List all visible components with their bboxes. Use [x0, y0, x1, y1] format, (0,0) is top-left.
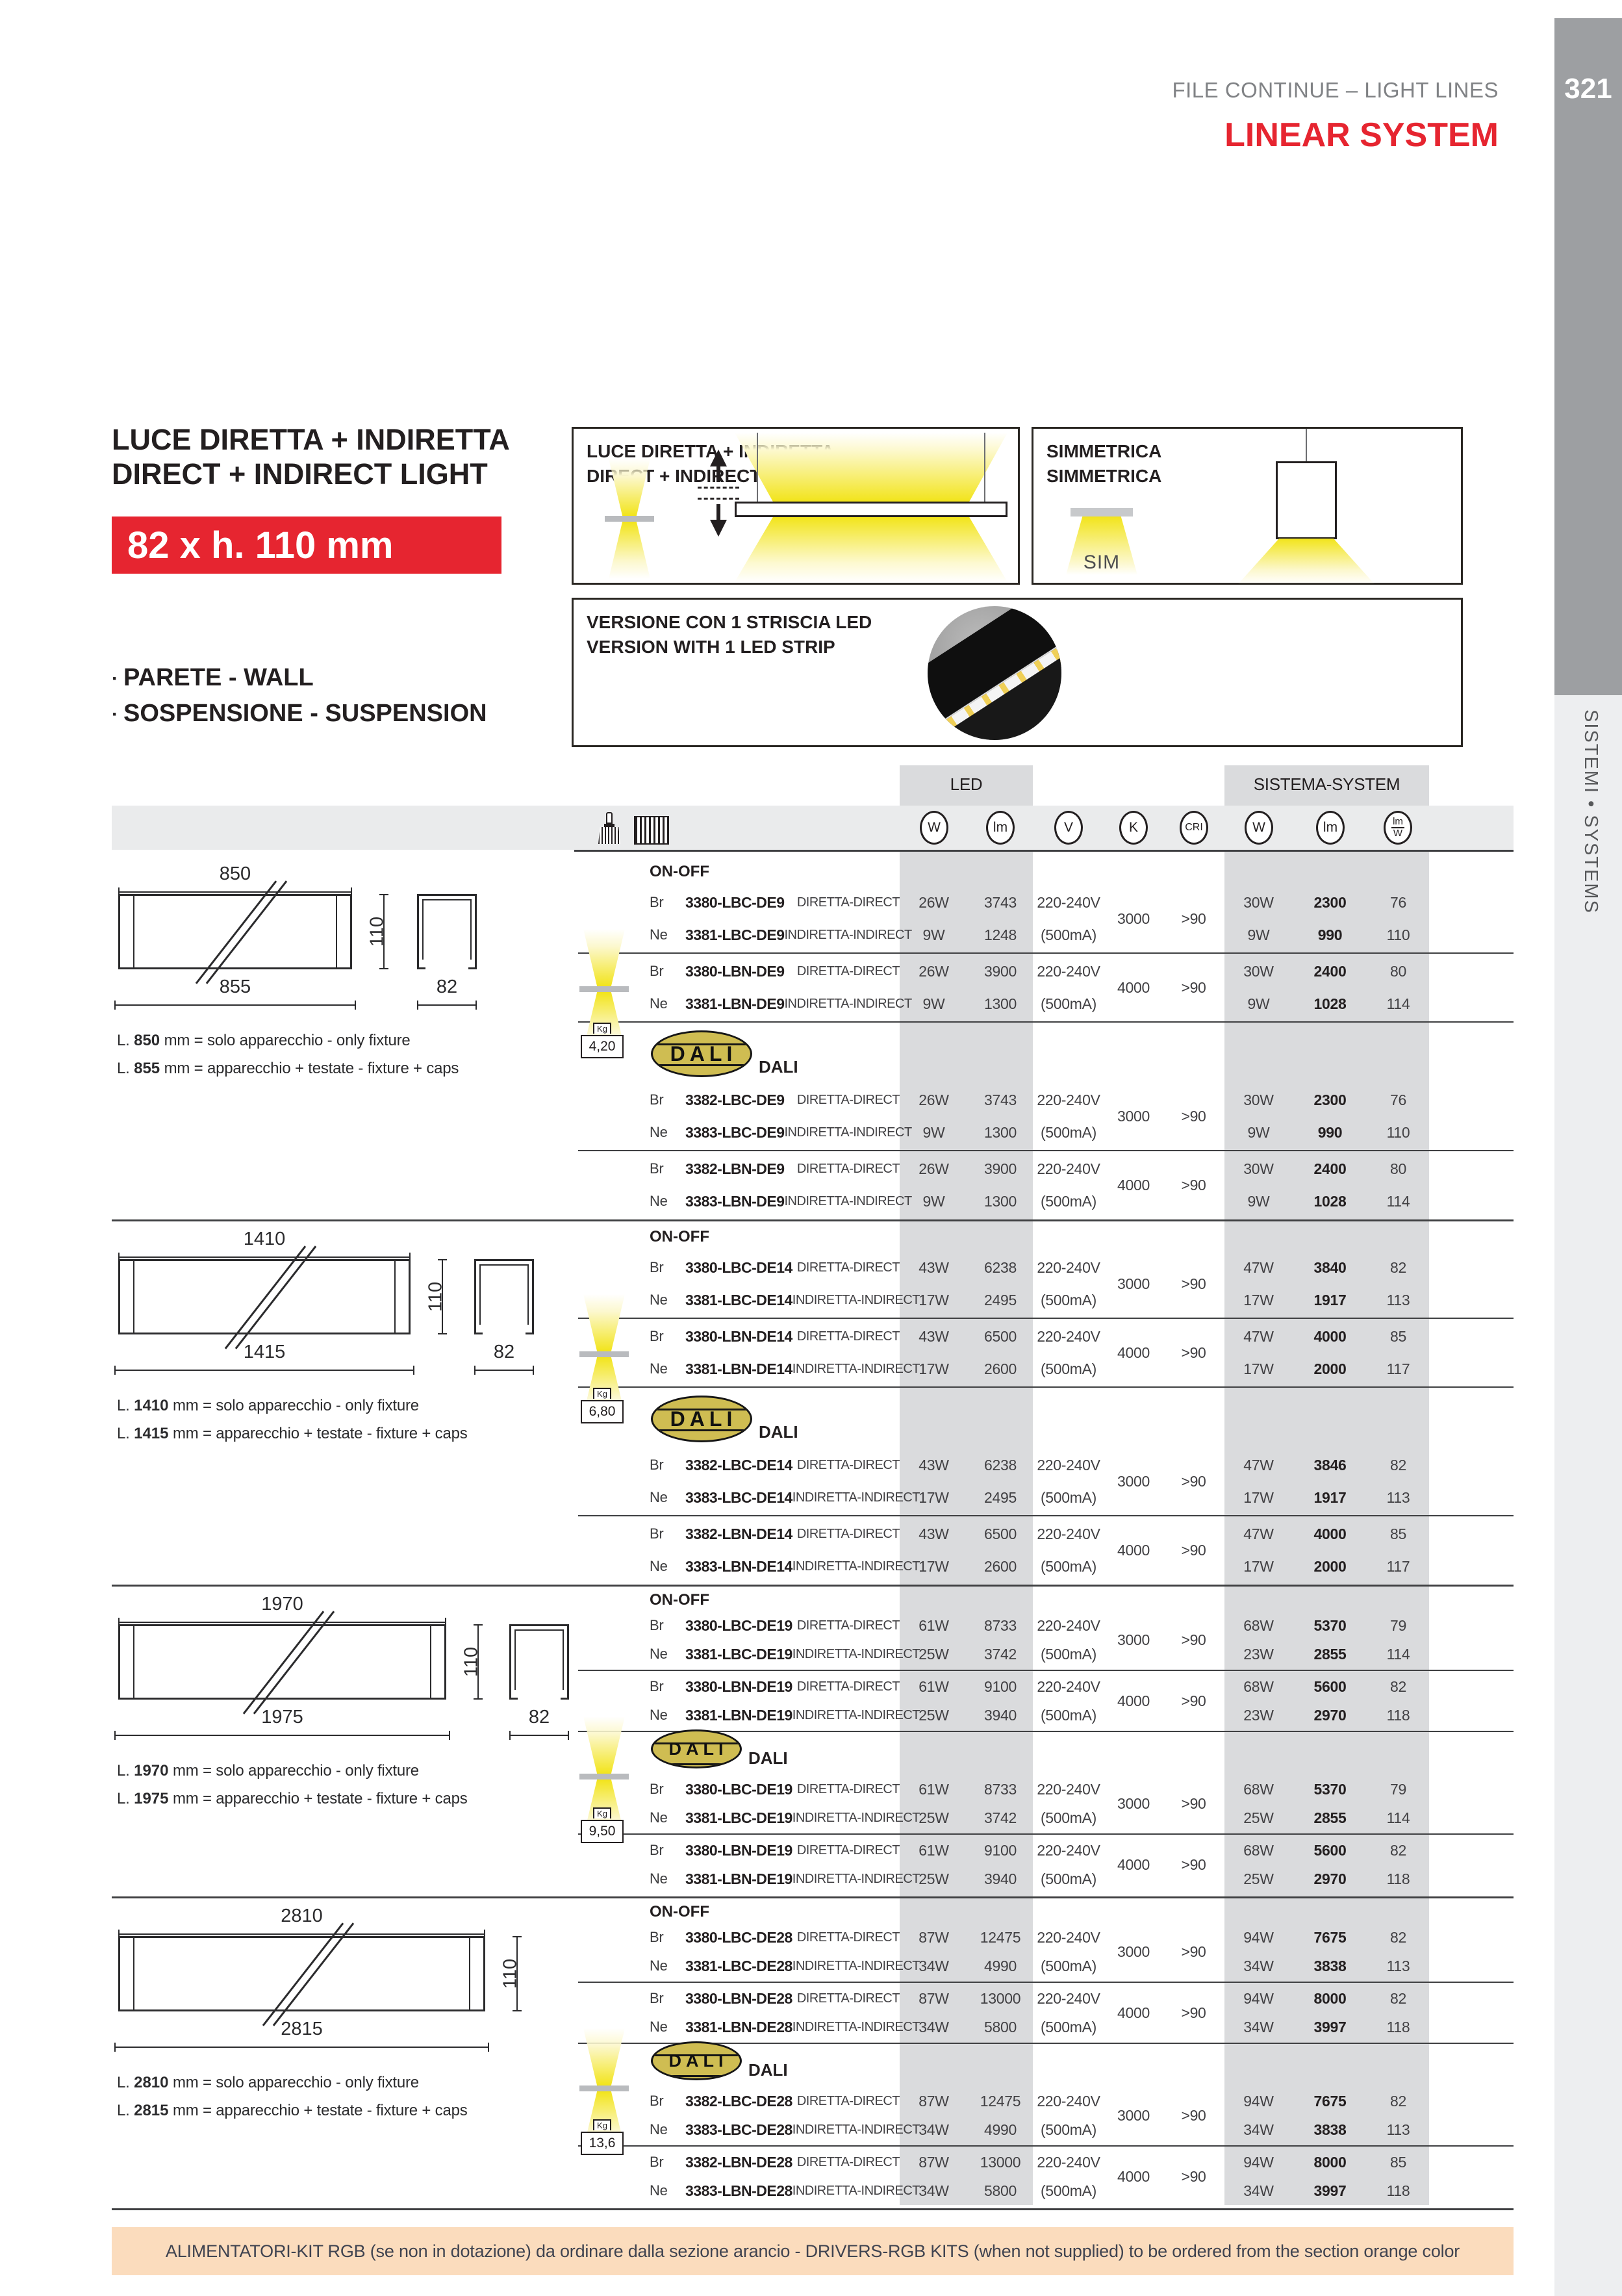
emission-label: DIRETTA-DIRECT — [797, 1775, 900, 1804]
current: (500mA) — [1033, 2013, 1104, 2041]
product-code: 3382-LBN-DE9 — [685, 1153, 785, 1185]
finish-code: Ne — [650, 2115, 685, 2144]
cri-value: >90 — [1181, 1692, 1206, 1710]
weight-value: 6,80 — [581, 1400, 624, 1423]
system-lmw: 85 — [1367, 1320, 1429, 1353]
system-lmw: 118 — [1367, 1701, 1429, 1729]
finish-code: Ne — [650, 1353, 685, 1385]
bullet-icon: · — [112, 704, 123, 725]
system-watt: 30W — [1224, 1084, 1293, 1116]
led-watt: 17W — [900, 1481, 968, 1514]
weight-unit: Kg — [593, 1023, 611, 1034]
product-code: 3382-LBC-DE14 — [685, 1449, 792, 1481]
dim-height: 110 — [461, 1647, 483, 1677]
emission-label: DIRETTA-DIRECT — [797, 1923, 900, 1952]
system-lumen: 2300 — [1293, 886, 1367, 919]
product-code: 3381-LBN-DE9 — [685, 988, 785, 1020]
header-kicker: FILE CONTINUE – LIGHT LINES — [1172, 78, 1499, 103]
led-watt: 61W — [900, 1775, 968, 1804]
system-lumen: 3997 — [1293, 2176, 1367, 2205]
led-lumen: 6500 — [968, 1320, 1033, 1353]
product-code: 3380-LBC-DE9 — [685, 886, 785, 919]
icon-spacer — [578, 2148, 650, 2205]
product-code: 3382-LBC-DE28 — [685, 2087, 792, 2115]
voltage: 220-240V — [1033, 1836, 1104, 1865]
current: (500mA) — [1033, 1640, 1104, 1668]
product-group: 850 110 855 82 L. 850 mm = solo apparecc… — [112, 856, 1514, 1221]
led-watt: 9W — [900, 1185, 968, 1218]
info-box-title-line2: VERSION WITH 1 LED STRIP — [587, 635, 872, 659]
system-lumen: 8000 — [1293, 1984, 1367, 2013]
sim-icon-label: SIM — [1083, 552, 1120, 575]
emission-label: DIRETTA-DIRECT — [797, 1984, 900, 2013]
system-watt-unit-icon: W — [1245, 811, 1273, 845]
product-code: 3381-LBN-DE28 — [685, 2013, 792, 2041]
dim-width: 82 — [474, 1342, 534, 1363]
product-code-icon — [635, 817, 668, 843]
cri-value: >90 — [1181, 2168, 1206, 2186]
system-watt: 17W — [1224, 1550, 1293, 1583]
voltage: 220-240V — [1033, 886, 1104, 919]
product-code: 3381-LBC-DE19 — [685, 1640, 792, 1668]
system-lumen: 4000 — [1293, 1320, 1367, 1353]
finish-code: Ne — [650, 1701, 685, 1729]
voltage: 220-240V — [1033, 1449, 1104, 1481]
color-temperature: 3000 — [1117, 1795, 1150, 1813]
finish-code: Ne — [650, 1185, 685, 1218]
voltage: 220-240V — [1033, 955, 1104, 988]
dali-label: DALI — [759, 1422, 798, 1442]
system-lmw: 114 — [1367, 1185, 1429, 1218]
width-dimension: 82 — [509, 1707, 569, 1736]
system-lumen: 3997 — [1293, 2013, 1367, 2041]
emission-label: DIRETTA-DIRECT — [797, 1836, 900, 1865]
dimension-drawing: 850 110 855 82 L. 850 mm = solo apparecc… — [112, 864, 578, 1163]
voltage: 220-240V — [1033, 1775, 1104, 1804]
current: (500mA) — [1033, 1804, 1104, 1832]
product-code: 3380-LBN-DE28 — [685, 1984, 792, 2013]
product-code: 3382-LBC-DE9 — [685, 1084, 785, 1116]
voltage: 220-240V — [1033, 1153, 1104, 1185]
finish-brush-icon — [596, 812, 622, 846]
led-lumen: 3900 — [968, 1153, 1033, 1185]
page-title: LINEAR SYSTEM — [1224, 116, 1499, 155]
finish-code: Br — [650, 1672, 685, 1701]
system-lmw: 79 — [1367, 1775, 1429, 1804]
led-watt: 87W — [900, 1923, 968, 1952]
dali-section-header: DALI DALI — [651, 2044, 1514, 2086]
system-lmw: 114 — [1367, 1640, 1429, 1668]
cri-value: >90 — [1181, 1631, 1206, 1649]
direct-indirect-light-icon — [609, 459, 650, 579]
system-watt: 94W — [1224, 1923, 1293, 1952]
led-lumen: 6238 — [968, 1251, 1033, 1284]
weight-value: 9,50 — [581, 1820, 624, 1843]
led-watt: 25W — [900, 1865, 968, 1893]
dali-label: DALI — [748, 2060, 788, 2080]
product-row-pair: Br Ne 3380-LBC-DE9DIRETTA-DIRECT 3381-LB… — [578, 885, 1514, 952]
system-watt: 94W — [1224, 2148, 1293, 2176]
product-code: 3381-LBC-DE9 — [685, 919, 785, 951]
finish-code: Ne — [650, 919, 685, 951]
length-dimension-bottom: 1975 — [114, 1707, 450, 1736]
current: (500mA) — [1033, 1550, 1104, 1583]
system-lumen: 5600 — [1293, 1836, 1367, 1865]
section-label: ON-OFF — [650, 1224, 1514, 1250]
system-watt: 94W — [1224, 1984, 1293, 2013]
height-dimension: 110 — [505, 1936, 528, 2011]
color-temperature: 3000 — [1117, 1275, 1150, 1293]
product-row-pair: Br Ne 3380-LBN-DE28DIRETTA-DIRECT 3381-L… — [578, 1983, 1514, 2043]
led-watt: 43W — [900, 1320, 968, 1353]
length-dimension-top: 850 — [118, 864, 352, 893]
color-temperature: 4000 — [1117, 2004, 1150, 2022]
product-row-pair: Br Ne 3382-LBC-DE9DIRETTA-DIRECT 3383-LB… — [578, 1082, 1514, 1150]
system-lumen: 2300 — [1293, 1084, 1367, 1116]
product-photo — [928, 606, 1061, 740]
group-sections: ON-OFF Br Ne 3380-LBC-DE19DIRETTA-DIRECT… — [578, 1587, 1514, 1894]
system-watt: 34W — [1224, 1952, 1293, 1980]
finish-code: Br — [650, 886, 685, 919]
current: (500mA) — [1033, 1353, 1104, 1385]
led-lumen: 1248 — [968, 919, 1033, 951]
color-temperature: 3000 — [1117, 1943, 1150, 1961]
system-watt: 94W — [1224, 2087, 1293, 2115]
product-code: 3383-LBC-DE28 — [685, 2115, 792, 2144]
led-watt: 61W — [900, 1672, 968, 1701]
voltage-unit-icon: V — [1054, 811, 1083, 845]
led-watt: 34W — [900, 1952, 968, 1980]
system-lmw: 82 — [1367, 1923, 1429, 1952]
cri-value: >90 — [1181, 1275, 1206, 1293]
led-watt: 9W — [900, 988, 968, 1020]
table-header-rule — [574, 850, 1514, 852]
system-watt: 68W — [1224, 1775, 1293, 1804]
led-lumen: 3940 — [968, 1865, 1033, 1893]
length-caption: L. 1410 mm = solo apparecchio - only fix… — [117, 1392, 468, 1420]
fixture-top-view — [118, 894, 352, 969]
voltage: 220-240V — [1033, 1518, 1104, 1550]
color-temperature: 4000 — [1117, 1692, 1150, 1710]
length-dimension-top: 1410 — [118, 1229, 411, 1258]
section-label: ON-OFF — [650, 1589, 1514, 1610]
finish-code: Ne — [650, 1550, 685, 1583]
system-watt: 47W — [1224, 1449, 1293, 1481]
length-dimension-top: 1970 — [118, 1594, 446, 1623]
product-code: 3380-LBN-DE14 — [685, 1320, 792, 1353]
cri-value: >90 — [1181, 2004, 1206, 2022]
led-lumen: 3742 — [968, 1640, 1033, 1668]
finish-code: Br — [650, 1611, 685, 1640]
system-watt: 47W — [1224, 1251, 1293, 1284]
emission-label: DIRETTA-DIRECT — [797, 886, 900, 919]
finish-code: Ne — [650, 1804, 685, 1832]
led-lumen: 1300 — [968, 1116, 1033, 1149]
bullet-icon: · — [112, 668, 123, 689]
rgb-drivers-note: ALIMENTATORI-KIT RGB (se non in dotazion… — [112, 2227, 1514, 2275]
system-watt: 17W — [1224, 1353, 1293, 1385]
product-code: 3380-LBC-DE19 — [685, 1611, 792, 1640]
dali-section-header: DALI DALI — [651, 1732, 1514, 1774]
color-temperature: 3000 — [1117, 1631, 1150, 1649]
product-row-pair: Br Ne 3380-LBC-DE19DIRETTA-DIRECT 3381-L… — [578, 1610, 1514, 1670]
led-watt: 87W — [900, 2148, 968, 2176]
system-lumen: 5370 — [1293, 1775, 1367, 1804]
size-badge: 82 x h. 110 mm — [112, 517, 501, 574]
current: (500mA) — [1033, 1284, 1104, 1316]
led-lumen: 4990 — [968, 2115, 1033, 2144]
emission-label: DIRETTA-DIRECT — [797, 1449, 900, 1481]
emission-label: DIRETTA-DIRECT — [797, 1084, 900, 1116]
led-lumen: 3743 — [968, 1084, 1033, 1116]
dim-length-bottom: 855 — [114, 976, 356, 998]
led-lumen: 2495 — [968, 1284, 1033, 1316]
dim-length-top: 2810 — [118, 1906, 485, 1927]
led-watt: 17W — [900, 1353, 968, 1385]
system-lumen: 1028 — [1293, 1185, 1367, 1218]
product-group: 1970 110 1975 82 L. 1970 mm = solo appar… — [112, 1587, 1514, 1898]
finish-code: Br — [650, 1518, 685, 1550]
current: (500mA) — [1033, 2115, 1104, 2144]
led-lumen: 13000 — [968, 1984, 1033, 2013]
system-lumen: 7675 — [1293, 2087, 1367, 2115]
group-sections: ON-OFF Br Ne 3380-LBC-DE28DIRETTA-DIRECT… — [578, 1898, 1514, 2206]
mounting-item-label: PARETE - WALL — [123, 664, 314, 691]
led-lumen: 13000 — [968, 2148, 1033, 2176]
fixture-top-view — [118, 1624, 446, 1700]
dim-height: 110 — [425, 1282, 447, 1312]
system-lmw: 110 — [1367, 919, 1429, 951]
led-lumen: 9100 — [968, 1836, 1033, 1865]
color-temperature: 3000 — [1117, 2107, 1150, 2124]
fixture-profile-view — [509, 1624, 569, 1700]
section-label: ON-OFF — [650, 1901, 1514, 1922]
system-watt: 17W — [1224, 1284, 1293, 1316]
cri-value: >90 — [1181, 2107, 1206, 2124]
pendant-diagram — [696, 433, 1007, 583]
icon-spacer — [578, 1923, 650, 1980]
kelvin-unit-icon: K — [1119, 811, 1148, 845]
emission-label: DIRETTA-DIRECT — [797, 1251, 900, 1284]
finish-code: Br — [650, 955, 685, 988]
system-watt: 68W — [1224, 1611, 1293, 1640]
current: (500mA) — [1033, 1116, 1104, 1149]
dimension-drawing: 1410 110 1415 82 L. 1410 mm = solo appar… — [112, 1229, 578, 1528]
color-temperature: 4000 — [1117, 1856, 1150, 1874]
product-code: 3383-LBN-DE28 — [685, 2176, 792, 2205]
current: (500mA) — [1033, 1185, 1104, 1218]
led-watt: 34W — [900, 2013, 968, 2041]
voltage: 220-240V — [1033, 1672, 1104, 1701]
weight-icon: Kg 6,80 — [581, 1388, 624, 1423]
color-temperature: 4000 — [1117, 1177, 1150, 1194]
voltage: 220-240V — [1033, 1084, 1104, 1116]
mounting-item: ·SOSPENSIONE - SUSPENSION — [112, 696, 487, 732]
led-watt: 61W — [900, 1611, 968, 1640]
product-row-pair: Br Ne 3380-LBC-DE14DIRETTA-DIRECT 3381-L… — [578, 1250, 1514, 1318]
system-watt: 47W — [1224, 1320, 1293, 1353]
led-lumen: 5800 — [968, 2013, 1033, 2041]
voltage: 220-240V — [1033, 2087, 1104, 2115]
system-lmw: 80 — [1367, 1153, 1429, 1185]
led-watt: 43W — [900, 1251, 968, 1284]
length-dimension-bottom: 855 — [114, 977, 356, 1006]
led-lumen: 6238 — [968, 1449, 1033, 1481]
system-lumen: 990 — [1293, 919, 1367, 951]
product-code: 3380-LBN-DE19 — [685, 1672, 792, 1701]
dimension-drawing: 1970 110 1975 82 L. 1970 mm = solo appar… — [112, 1594, 578, 1893]
voltage: 220-240V — [1033, 2148, 1104, 2176]
dim-length-bottom: 2815 — [114, 2019, 489, 2040]
system-lmw: 113 — [1367, 1481, 1429, 1514]
led-lumen: 3940 — [968, 1701, 1033, 1729]
product-title-line2: DIRECT + INDIRECT LIGHT — [112, 457, 510, 491]
finish-code: Ne — [650, 1952, 685, 1980]
voltage: 220-240V — [1033, 1984, 1104, 2013]
product-code: 3380-LBC-DE28 — [685, 1923, 792, 1952]
led-watt: 34W — [900, 2115, 968, 2144]
led-watt: 26W — [900, 955, 968, 988]
led-watt: 43W — [900, 1449, 968, 1481]
finish-code: Br — [650, 1084, 685, 1116]
dali-logo: DALI — [651, 2041, 742, 2080]
led-lumen: 1300 — [968, 988, 1033, 1020]
system-lumen: 2970 — [1293, 1865, 1367, 1893]
system-lmw: 82 — [1367, 2087, 1429, 2115]
fixture-profile-view — [417, 894, 477, 969]
product-code: 3381-LBN-DE19 — [685, 1865, 792, 1893]
system-lmw: 76 — [1367, 886, 1429, 919]
dim-length-bottom: 1415 — [114, 1342, 414, 1363]
icon-spacer — [578, 1518, 650, 1583]
mounting-item-label: SOSPENSIONE - SUSPENSION — [123, 700, 487, 727]
emission-label: DIRETTA-DIRECT — [797, 955, 900, 988]
fixture-top-view — [118, 1259, 411, 1334]
system-lmw: 82 — [1367, 1449, 1429, 1481]
color-temperature: 3000 — [1117, 1108, 1150, 1125]
voltage: 220-240V — [1033, 1320, 1104, 1353]
weight-unit: Kg — [593, 1807, 611, 1818]
system-watt: 23W — [1224, 1640, 1293, 1668]
product-row-pair: Br Ne 3380-LBC-DE19DIRETTA-DIRECT 3381-L… — [578, 1774, 1514, 1833]
system-lmw: 113 — [1367, 2115, 1429, 2144]
dali-logo: DALI — [651, 1729, 742, 1768]
system-lumen: 8000 — [1293, 2148, 1367, 2176]
system-lumen: 3838 — [1293, 1952, 1367, 1980]
color-temperature: 4000 — [1117, 1344, 1150, 1362]
length-caption: L. 1415 mm = apparecchio + testate - fix… — [117, 1420, 468, 1448]
emission-label: DIRETTA-DIRECT — [797, 1672, 900, 1701]
dim-height: 110 — [367, 917, 388, 947]
led-lumen: 9100 — [968, 1672, 1033, 1701]
product-row-pair: Br Ne 3382-LBC-DE28DIRETTA-DIRECT 3383-L… — [578, 2086, 1514, 2145]
led-watt: 17W — [900, 1550, 968, 1583]
product-group: 1410 110 1415 82 L. 1410 mm = solo appar… — [112, 1221, 1514, 1587]
color-temperature: 3000 — [1117, 910, 1150, 928]
cri-unit-icon: CRI — [1180, 811, 1208, 845]
led-lumen: 1300 — [968, 1185, 1033, 1218]
system-lumen: 1917 — [1293, 1284, 1367, 1316]
length-captions: L. 1970 mm = solo apparecchio - only fix… — [117, 1757, 468, 1813]
led-lumen: 8733 — [968, 1775, 1033, 1804]
finish-code: Br — [650, 2148, 685, 2176]
system-lumen: 2000 — [1293, 1353, 1367, 1385]
finish-code: Ne — [650, 2013, 685, 2041]
led-lumen: 12475 — [968, 2087, 1033, 2115]
product-code: 3383-LBC-DE14 — [685, 1481, 792, 1514]
weight-value: 4,20 — [581, 1035, 624, 1058]
led-lumen: 2495 — [968, 1481, 1033, 1514]
system-lmw: 82 — [1367, 1984, 1429, 2013]
led-lumen: 4990 — [968, 1952, 1033, 1980]
length-dimension-bottom: 1415 — [114, 1342, 414, 1371]
product-groups: 850 110 855 82 L. 850 mm = solo apparecc… — [112, 856, 1514, 2210]
system-lumen: 2400 — [1293, 955, 1367, 988]
dim-width: 82 — [509, 1707, 569, 1728]
product-code: 3383-LBC-DE9 — [685, 1116, 785, 1149]
length-captions: L. 1410 mm = solo apparecchio - only fix… — [117, 1392, 468, 1448]
color-temperature: 4000 — [1117, 979, 1150, 997]
system-lmw: 82 — [1367, 1251, 1429, 1284]
product-row-pair: Br Ne 3382-LBN-DE9DIRETTA-DIRECT 3383-LB… — [578, 1151, 1514, 1219]
length-caption: L. 2815 mm = apparecchio + testate - fix… — [117, 2097, 468, 2124]
info-box-led-strip: VERSIONE CON 1 STRISCIA LED VERSION WITH… — [572, 598, 1463, 747]
product-row-pair: Br Ne 3380-LBN-DE14DIRETTA-DIRECT 3381-L… — [578, 1319, 1514, 1386]
product-code: 3381-LBN-DE14 — [685, 1353, 792, 1385]
mounting-item: ·PARETE - WALL — [112, 660, 487, 696]
system-lmw: 85 — [1367, 1518, 1429, 1550]
led-lumen: 3743 — [968, 886, 1033, 919]
product-code: 3380-LBC-DE14 — [685, 1251, 792, 1284]
led-watt: 25W — [900, 1804, 968, 1832]
catalog-page: { "page": { "number": "321", "kicker": "… — [0, 0, 1622, 2296]
system-watt: 25W — [1224, 1804, 1293, 1832]
height-dimension: 110 — [430, 1259, 453, 1334]
led-lumen: 6500 — [968, 1518, 1033, 1550]
system-lmw: 114 — [1367, 1804, 1429, 1832]
dali-section-header: DALI DALI — [651, 1388, 1514, 1448]
product-row-pair: Br Ne 3380-LBN-DE9DIRETTA-DIRECT 3381-LB… — [578, 954, 1514, 1021]
product-code: 3381-LBN-DE19 — [685, 1701, 792, 1729]
product-row-pair: Br Ne 3382-LBN-DE14DIRETTA-DIRECT 3383-L… — [578, 1516, 1514, 1584]
led-watt: 25W — [900, 1640, 968, 1668]
dali-section-header: DALI DALI — [651, 1023, 1514, 1082]
product-code: 3383-LBN-DE14 — [685, 1550, 792, 1583]
weight-icon: Kg 9,50 — [581, 1807, 624, 1843]
cri-value: >90 — [1181, 1856, 1206, 1874]
system-lumen: 4000 — [1293, 1518, 1367, 1550]
system-lumen: 3846 — [1293, 1449, 1367, 1481]
product-row-pair: Br Ne 3382-LBC-DE14DIRETTA-DIRECT 3383-L… — [578, 1448, 1514, 1515]
emission-label: INDIRETTA-INDIRECT — [785, 919, 912, 951]
cri-value: >90 — [1181, 1943, 1206, 1961]
emission-label: DIRETTA-DIRECT — [797, 1320, 900, 1353]
led-watt: 87W — [900, 2087, 968, 2115]
icon-spacer — [578, 1153, 650, 1218]
product-row-pair: Br Ne 3380-LBN-DE19DIRETTA-DIRECT 3381-L… — [578, 1671, 1514, 1731]
finish-code: Ne — [650, 1284, 685, 1316]
system-lumen: 1028 — [1293, 988, 1367, 1020]
system-lmw: 113 — [1367, 1284, 1429, 1316]
system-lmw: 118 — [1367, 2176, 1429, 2205]
current: (500mA) — [1033, 2176, 1104, 2205]
width-dimension: 82 — [474, 1342, 534, 1371]
led-watt: 17W — [900, 1284, 968, 1316]
finish-code: Br — [650, 1836, 685, 1865]
voltage: 220-240V — [1033, 1251, 1104, 1284]
lumen-per-watt-unit-icon: lmW — [1384, 811, 1412, 845]
system-lumen: 5600 — [1293, 1672, 1367, 1701]
